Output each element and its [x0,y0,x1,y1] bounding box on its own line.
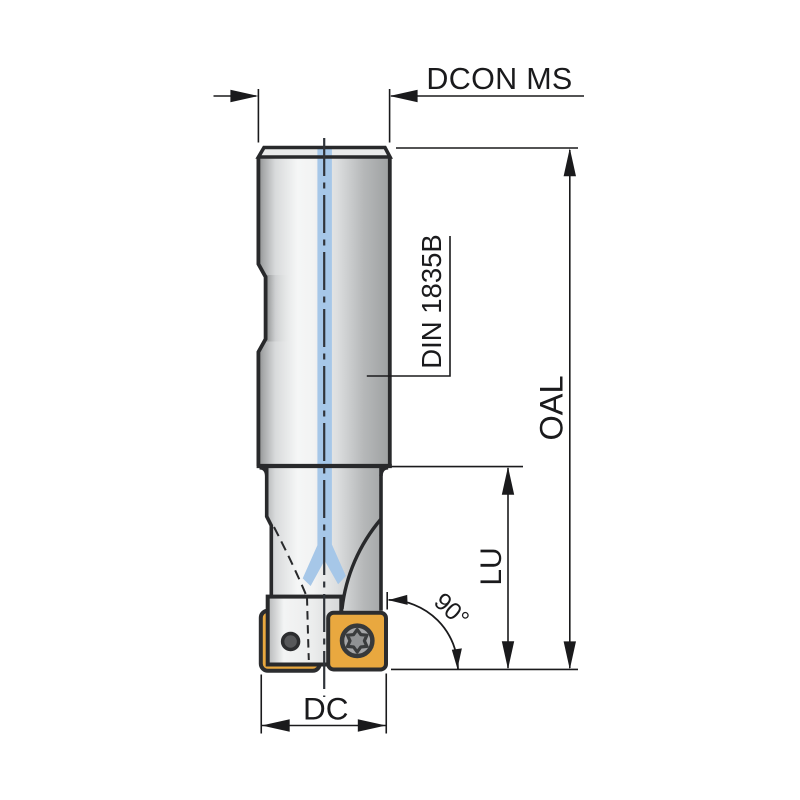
svg-text:DIN 1835B: DIN 1835B [416,234,447,369]
svg-text:DCON MS: DCON MS [426,62,572,96]
svg-text:OAL: OAL [534,375,570,440]
svg-text:LU: LU [475,547,508,585]
svg-text:DC: DC [303,691,349,727]
